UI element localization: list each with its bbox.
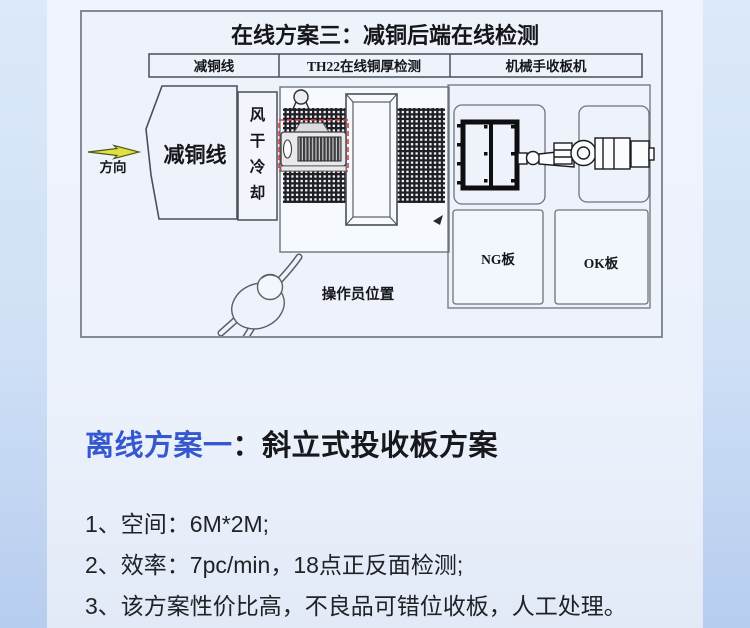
ok-bin-label: OK板 xyxy=(584,255,619,271)
robot-arm xyxy=(518,138,654,169)
spec-item-value: 3、该方案性价比高，不良品可错位收板，人工处理。 xyxy=(85,586,627,627)
heading-separator: ： xyxy=(233,430,263,462)
air-dry-char: 却 xyxy=(250,183,266,202)
operator-position-label: 操作员位置 xyxy=(322,285,395,303)
direction-arrow-icon xyxy=(88,146,139,159)
lane-header-th22-detection: TH22在线铜厚检测 xyxy=(307,58,421,74)
gantry-bridge xyxy=(346,94,397,225)
direction-label: 方向 xyxy=(100,159,127,175)
layout-diagram: 在线方案三：减铜后端在线检测 减铜线 TH22在线铜厚检测 机械手收板机 方向 … xyxy=(82,12,661,336)
heading-rest: 斜立式投收板方案 xyxy=(262,430,498,462)
air-dry-char: 干 xyxy=(250,133,266,150)
spec-item-efficiency: 2、效率：7pc/min，18点正反面检测; xyxy=(85,545,627,586)
lane-header-copper-line: 减铜线 xyxy=(194,58,235,74)
conveyor-mesh-right xyxy=(397,108,445,203)
robot-collector-section xyxy=(448,85,650,308)
ng-bin-label: NG板 xyxy=(481,251,515,267)
air-dry-cooling-block: 风 干 冷 却 xyxy=(238,92,277,220)
conveyor-section xyxy=(279,87,449,252)
air-dry-char: 冷 xyxy=(250,157,266,176)
diagram-title: 在线方案三：减铜后端在线检测 xyxy=(231,23,539,48)
spec-item-space: 1、空间：6M*2M; xyxy=(85,504,627,545)
air-dry-char: 风 xyxy=(250,106,266,124)
gripper-frame xyxy=(457,122,517,188)
copper-line-block: 减铜线 xyxy=(146,86,237,219)
section-heading: 离线方案一：斜立式投收板方案 xyxy=(85,422,498,464)
heading-highlight: 离线方案一 xyxy=(85,430,233,462)
copper-line-label: 减铜线 xyxy=(164,143,227,167)
lane-header-robot-collector: 机械手收板机 xyxy=(506,58,587,74)
layout-diagram-panel: 在线方案三：减铜后端在线检测 减铜线 TH22在线铜厚检测 机械手收板机 方向 … xyxy=(80,10,663,338)
spec-list: 1、空间：6M*2M; 2、效率：7pc/min，18点正反面检测; 3、该方案… xyxy=(85,504,627,627)
operator-figure xyxy=(221,257,299,336)
